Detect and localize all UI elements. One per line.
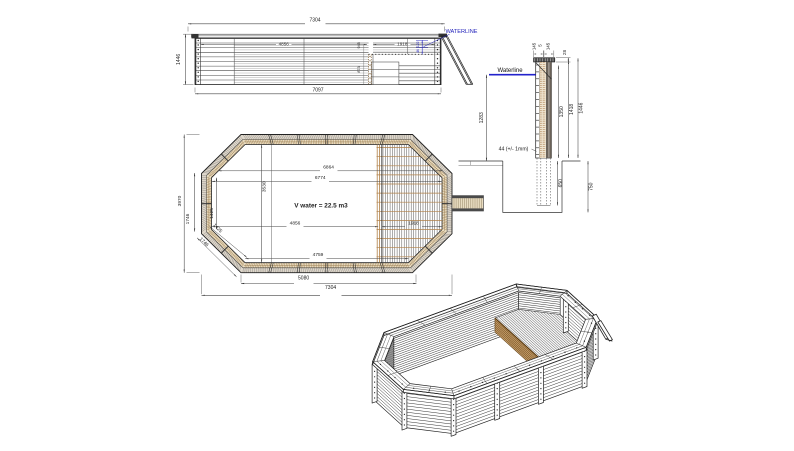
svg-text:7097: 7097 — [312, 87, 323, 93]
svg-text:6864: 6864 — [323, 164, 334, 170]
svg-text:1418: 1418 — [569, 104, 575, 115]
svg-text:145: 145 — [545, 42, 550, 50]
svg-text:3970: 3970 — [177, 195, 183, 206]
svg-text:1446: 1446 — [578, 102, 584, 113]
svg-text:5080: 5080 — [298, 275, 309, 281]
svg-text:V water = 22.5 m3: V water = 22.5 m3 — [294, 203, 348, 210]
svg-text:1918: 1918 — [408, 220, 419, 226]
svg-text:4856: 4856 — [290, 220, 301, 226]
svg-text:750: 750 — [588, 182, 594, 191]
svg-text:1446: 1446 — [176, 54, 182, 65]
svg-text:3530: 3530 — [261, 181, 267, 192]
svg-text:1746: 1746 — [185, 213, 191, 224]
svg-text:WATERLINE: WATERLINE — [445, 29, 477, 35]
svg-text:44 (+/- 1mm): 44 (+/- 1mm) — [499, 146, 529, 152]
svg-text:4856: 4856 — [279, 41, 290, 46]
svg-text:650: 650 — [558, 179, 564, 188]
svg-text:4759: 4759 — [313, 252, 324, 258]
svg-text:46: 46 — [416, 49, 420, 53]
svg-text:7304: 7304 — [325, 285, 336, 291]
svg-text:7304: 7304 — [309, 17, 320, 23]
svg-text:1918: 1918 — [397, 41, 408, 46]
svg-text:945: 945 — [357, 42, 361, 48]
svg-text:6774: 6774 — [315, 175, 326, 181]
svg-text:145: 145 — [531, 42, 536, 50]
svg-text:28: 28 — [562, 50, 567, 56]
svg-text:1283: 1283 — [479, 112, 485, 123]
svg-text:Waterline: Waterline — [497, 68, 523, 74]
svg-text:873: 873 — [357, 66, 361, 72]
svg-text:1350: 1350 — [559, 106, 565, 117]
svg-text:1425: 1425 — [209, 208, 215, 219]
svg-text:122: 122 — [416, 41, 420, 47]
